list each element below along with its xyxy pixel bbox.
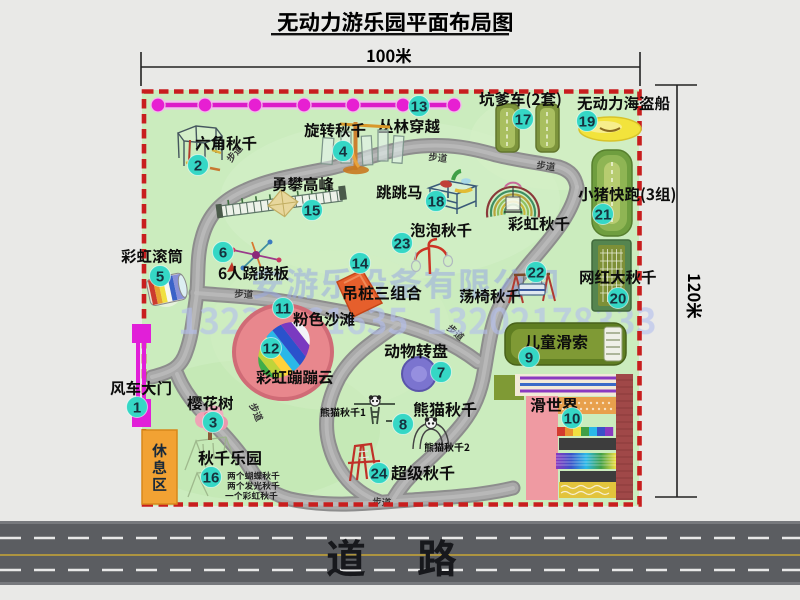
svg-text:3: 3 (209, 414, 217, 431)
svg-text:15: 15 (304, 202, 321, 219)
svg-text:2: 2 (194, 157, 202, 174)
svg-text:16: 16 (203, 469, 220, 486)
svg-text:13: 13 (411, 98, 428, 115)
svg-text:20: 20 (610, 290, 627, 307)
svg-text:14: 14 (352, 255, 369, 272)
svg-text:8: 8 (399, 416, 407, 433)
svg-text:19: 19 (579, 113, 596, 130)
svg-text:18: 18 (428, 193, 445, 210)
svg-text:11: 11 (275, 300, 291, 317)
svg-text:1: 1 (133, 399, 141, 416)
svg-text:21: 21 (595, 206, 612, 223)
svg-text:22: 22 (528, 264, 545, 281)
svg-text:4: 4 (339, 143, 348, 160)
svg-text:12: 12 (263, 340, 280, 357)
svg-text:6: 6 (219, 244, 227, 261)
svg-text:24: 24 (371, 465, 388, 482)
svg-text:5: 5 (156, 268, 164, 285)
svg-text:17: 17 (515, 111, 532, 128)
svg-text:9: 9 (525, 349, 533, 366)
svg-text:10: 10 (564, 410, 581, 427)
svg-text:7: 7 (437, 364, 445, 381)
svg-text:23: 23 (394, 235, 411, 252)
